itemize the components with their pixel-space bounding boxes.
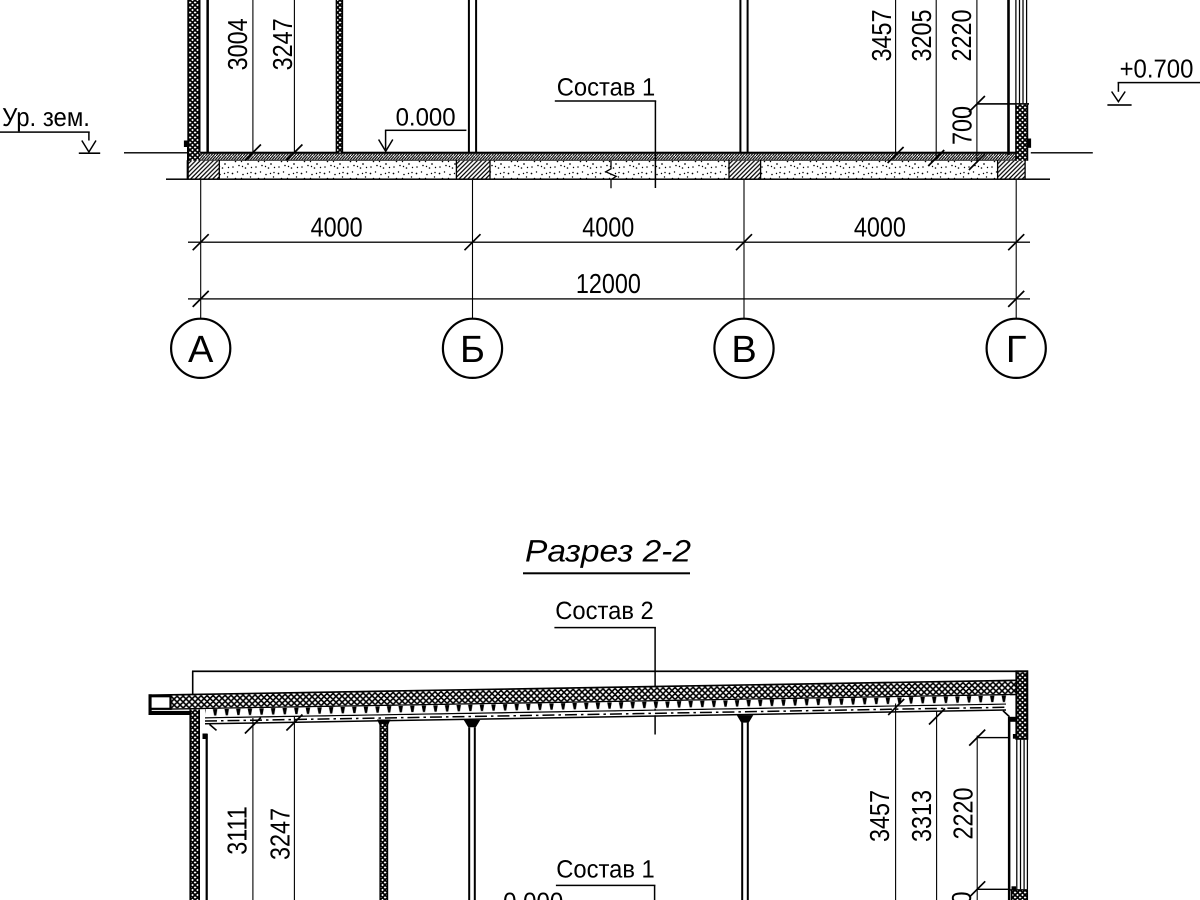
svg-text:3111: 3111 [222, 806, 253, 855]
svg-text:Состав 1: Состав 1 [556, 855, 654, 883]
svg-text:2220: 2220 [946, 9, 977, 61]
svg-text:0.000: 0.000 [396, 103, 456, 131]
svg-text:700: 700 [946, 891, 977, 900]
svg-text:3457: 3457 [866, 9, 897, 61]
svg-text:Б: Б [460, 329, 485, 371]
svg-text:В: В [731, 329, 756, 371]
svg-text:4000: 4000 [311, 211, 363, 242]
svg-text:3247: 3247 [264, 808, 295, 860]
svg-text:3205: 3205 [906, 9, 937, 61]
svg-text:А: А [188, 329, 214, 371]
svg-text:2220: 2220 [947, 787, 978, 839]
svg-text:3004: 3004 [222, 18, 253, 70]
svg-text:+0.700: +0.700 [1120, 53, 1194, 83]
svg-text:Разрез 2-2: Разрез 2-2 [525, 534, 691, 569]
svg-text:Состав 1: Состав 1 [557, 73, 655, 101]
svg-text:3247: 3247 [267, 18, 298, 70]
svg-text:3313: 3313 [906, 790, 937, 842]
svg-text:4000: 4000 [582, 211, 634, 242]
svg-text:0.000: 0.000 [503, 888, 563, 900]
svg-text:3457: 3457 [864, 790, 895, 842]
svg-text:4000: 4000 [854, 211, 906, 242]
svg-text:12000: 12000 [576, 268, 641, 299]
svg-text:Г: Г [1006, 329, 1027, 371]
svg-text:Состав 2: Состав 2 [555, 597, 653, 625]
svg-text:700: 700 [946, 106, 977, 145]
svg-text:Ур. зем.: Ур. зем. [2, 102, 90, 132]
